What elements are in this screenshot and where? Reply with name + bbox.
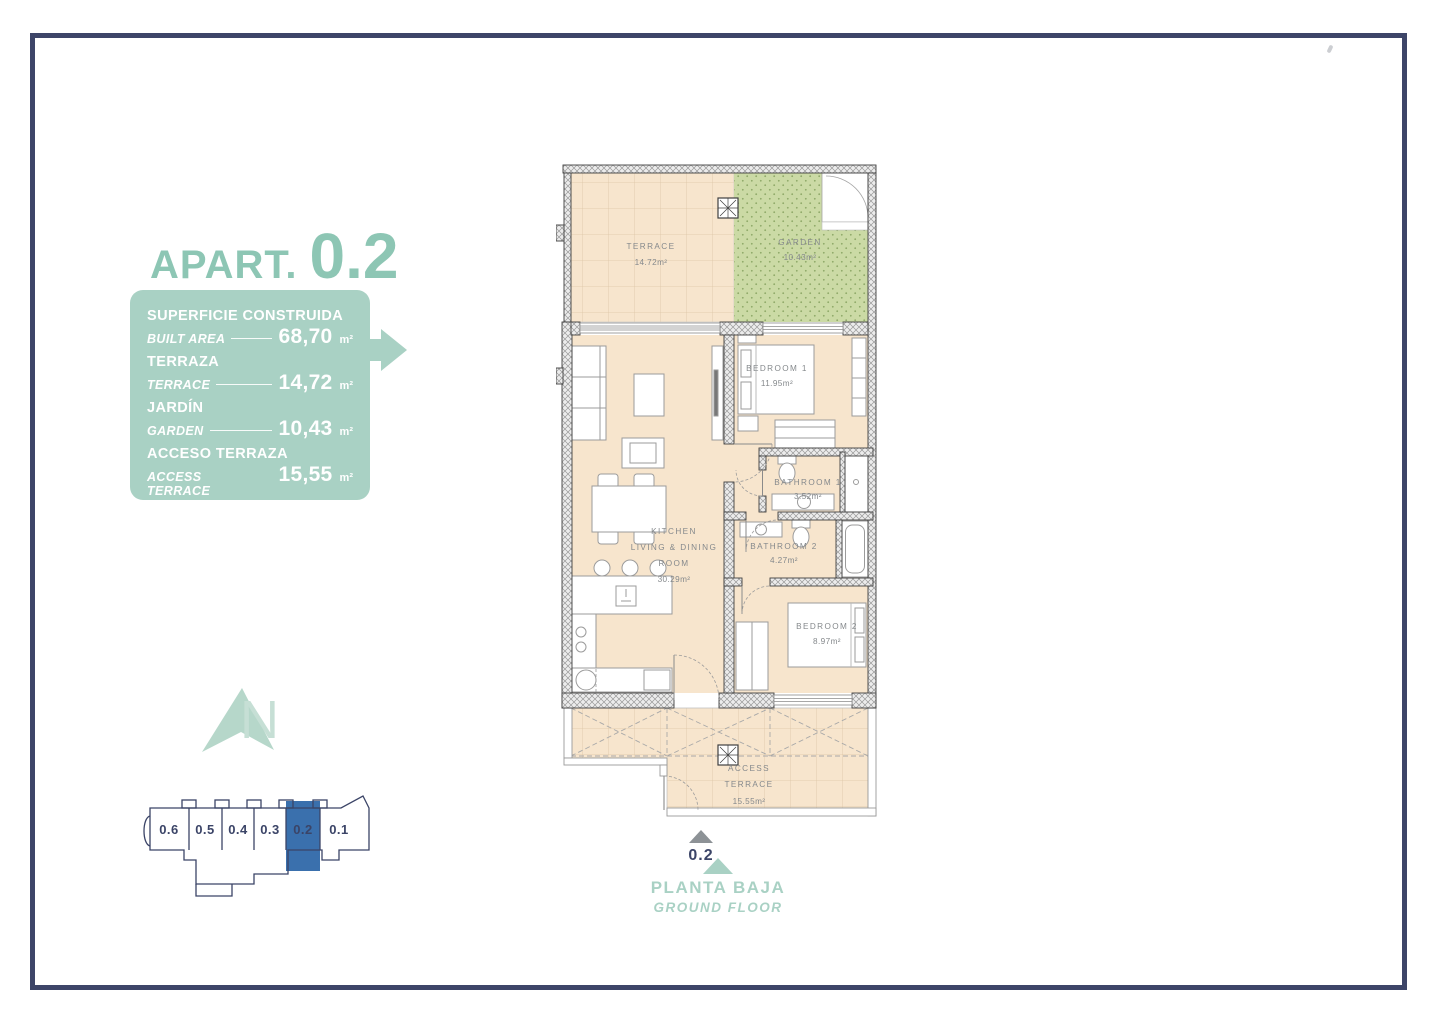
garden-label: GARDEN (778, 238, 821, 247)
wardrobe-1 (775, 420, 835, 448)
area-summary-box: SUPERFICIE CONSTRUIDA BUILT AREA 68,70 m… (130, 290, 370, 500)
leader-line (216, 384, 272, 385)
garden-row: GARDEN 10,43 m² (147, 417, 353, 441)
building-key-map: 0.6 0.5 0.4 0.3 0.2 0.1 (136, 786, 394, 906)
bedroom1-area: 11.95m² (761, 379, 793, 388)
terrace-area: 14.72m² (635, 258, 668, 267)
total-value: 109,40 (256, 507, 332, 536)
kitchen-sink (576, 670, 596, 690)
compass-letter: N (240, 690, 279, 750)
terrace-label: TERRACE (627, 242, 676, 251)
key-map-unit-0-4: 0.4 (228, 822, 248, 837)
garden-value: 10,43 (278, 417, 332, 441)
garden-unit: m² (340, 426, 353, 438)
garden-area: 10.43m² (784, 253, 817, 262)
kitchen-label-3: ROOM (658, 559, 689, 568)
bathroom2-label: BATHROOM 2 (750, 542, 818, 551)
garden-label-es: JARDÍN (147, 400, 353, 416)
key-map-unit-0-1: 0.1 (329, 822, 349, 837)
bedroom1-window (763, 323, 843, 333)
key-map-unit-0-2: 0.2 (293, 822, 313, 837)
floor-name-en: GROUND FLOOR (618, 900, 818, 915)
built-area-label-es: SUPERFICIE CONSTRUIDA (147, 308, 353, 324)
access-terrace-label-1: ACCESS (728, 764, 770, 773)
bathroom1-label: BATHROOM 1 (774, 478, 842, 487)
dining-table (592, 486, 666, 532)
bedroom2-label: BEDROOM 2 (796, 622, 858, 631)
tv (714, 370, 718, 416)
pillow (741, 382, 751, 409)
access-terrace-row: ACCESS TERRACE 15,55 m² (147, 463, 353, 498)
bedroom2-window (774, 695, 852, 705)
access-terrace-value: 15,55 (278, 463, 332, 487)
floor-plan: TERRACE 14.72m² GARDEN 10.43m² BEDROOM 1… (556, 156, 880, 866)
leader-line (231, 338, 272, 339)
coffee-table (634, 374, 664, 416)
access-terrace-label-es: ACCESO TERRAZA (147, 446, 353, 462)
apartment-title: APART. 0.2 (150, 228, 398, 288)
bedroom1-label: BEDROOM 1 (746, 364, 808, 373)
floor-indicator: PLANTA BAJA GROUND FLOOR (618, 858, 818, 915)
built-area-label-en: BUILT AREA (147, 332, 225, 346)
terrace-row: TERRACE 14,72 m² (147, 371, 353, 395)
unit-marker-triangle-icon (689, 830, 713, 843)
shower-drain (854, 480, 859, 485)
leader-line (205, 524, 250, 525)
built-area-row: BUILT AREA 68,70 m² (147, 325, 353, 349)
stool (594, 560, 610, 576)
kitchen-label-2: LIVING & DINING (631, 543, 718, 552)
floor-name-es: PLANTA BAJA (618, 878, 818, 898)
apartment-title-prefix: APART. (150, 243, 297, 288)
pillow (855, 637, 864, 662)
floor-triangle-icon (703, 858, 733, 874)
north-compass-icon: N (196, 682, 296, 767)
garden-label-en: GARDEN (147, 424, 204, 438)
nightstand (738, 416, 758, 431)
apartment-title-number: 0.2 (309, 228, 398, 286)
bathroom2-area: 4.27m² (770, 556, 798, 565)
closet (852, 338, 866, 416)
terrace-label-en: TERRACE (147, 378, 210, 392)
terrace-unit: m² (340, 380, 353, 392)
key-map-unit-0-6: 0.6 (159, 822, 179, 837)
key-map-unit-0-5: 0.5 (195, 822, 215, 837)
bed-2 (788, 603, 866, 667)
built-area-value: 68,70 (278, 325, 332, 349)
stool (622, 560, 638, 576)
total-row: TOTAL 109,40 m² (147, 507, 353, 536)
total-label: TOTAL (147, 516, 199, 533)
built-area-unit: m² (340, 334, 353, 346)
terrace-label-es: TERRAZA (147, 354, 353, 370)
bedroom2-area: 8.97m² (813, 637, 841, 646)
terrace-value: 14,72 (278, 371, 332, 395)
access-terrace-label-2: TERRACE (725, 780, 774, 789)
sofa (572, 346, 606, 440)
basin (756, 524, 767, 535)
leader-line (210, 430, 273, 431)
bathtub-inner (846, 525, 865, 573)
bathroom1-area: 3.52m² (794, 492, 822, 501)
access-terrace-area: 15.55m² (733, 797, 766, 806)
total-unit: m² (340, 520, 353, 532)
kitchen-area: 30.29m² (658, 575, 691, 584)
oven (644, 670, 670, 690)
kitchen-label-1: KITCHEN (651, 527, 697, 536)
summary-arrow-icon (362, 326, 410, 374)
access-terrace-label-en: ACCESS TERRACE (147, 470, 266, 498)
access-terrace-unit: m² (340, 472, 353, 484)
page: APART. 0.2 SUPERFICIE CONSTRUIDA BUILT A… (0, 0, 1440, 1024)
key-map-unit-0-3: 0.3 (260, 822, 280, 837)
